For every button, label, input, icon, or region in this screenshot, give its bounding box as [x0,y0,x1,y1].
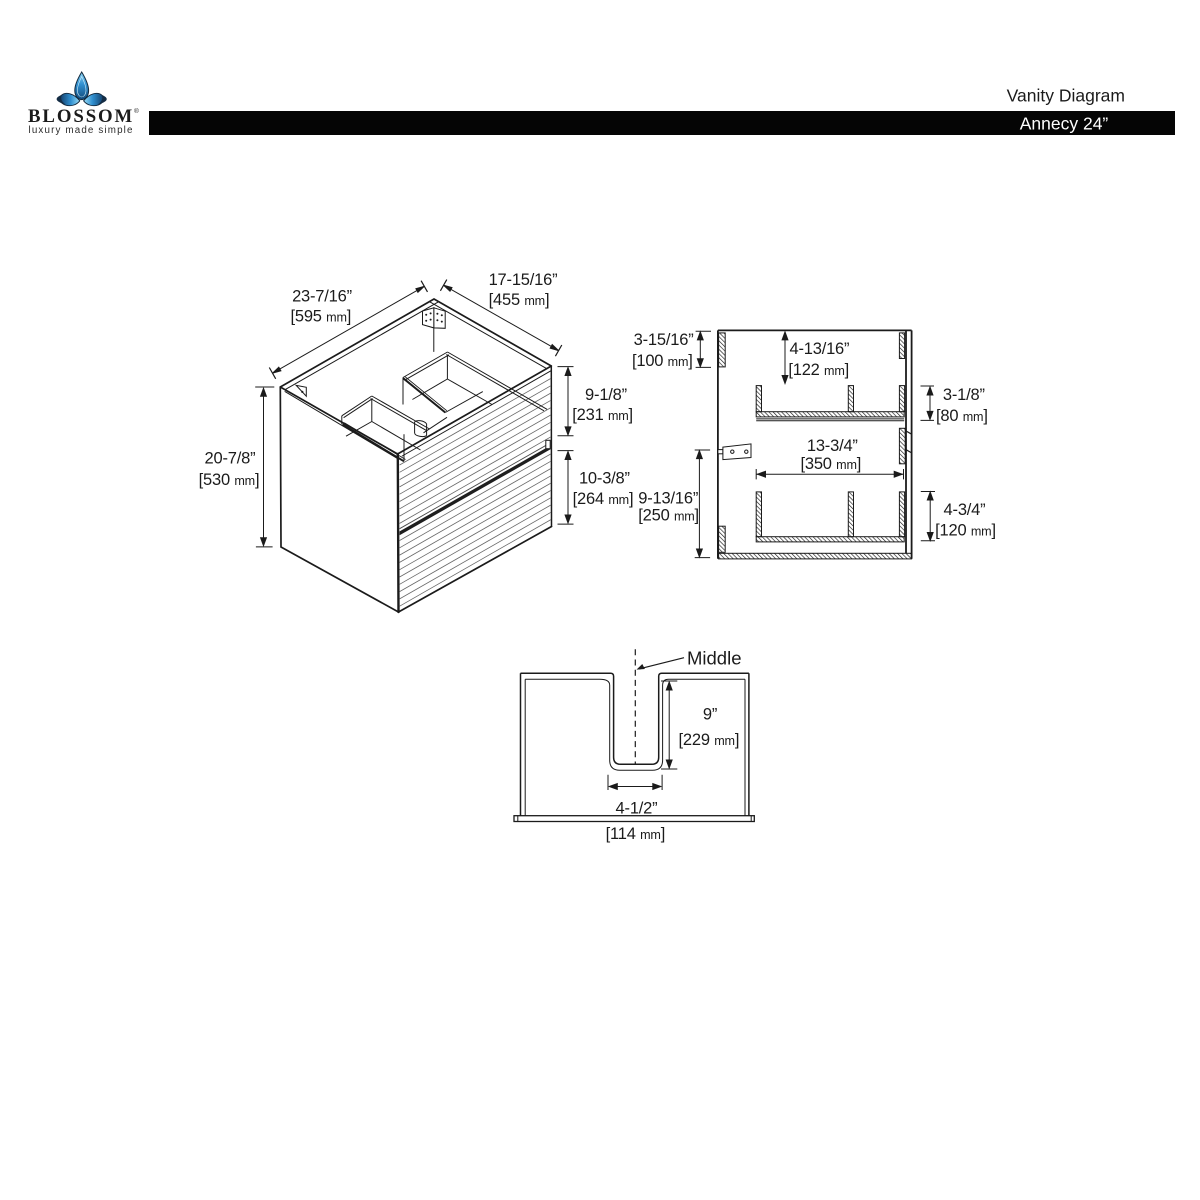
svg-text:[231 mm]: [231 mm] [572,406,633,424]
svg-text:4-3/4”: 4-3/4” [944,501,986,519]
svg-text:9”: 9” [703,706,717,724]
svg-text:[114 mm]: [114 mm] [606,825,665,843]
svg-text:[80 mm]: [80 mm] [936,407,988,425]
svg-text:4-13/16”: 4-13/16” [789,340,849,358]
svg-text:4-1/2”: 4-1/2” [616,799,658,817]
svg-text:[530 mm]: [530 mm] [199,471,260,489]
svg-text:Annecy 24”: Annecy 24” [1020,114,1109,134]
svg-text:[350 mm]: [350 mm] [800,455,861,473]
svg-text:9-13/16”: 9-13/16” [638,489,698,507]
svg-text:®: ® [134,107,139,115]
svg-text:Vanity Diagram: Vanity Diagram [1007,86,1125,106]
svg-text:10-3/8”: 10-3/8” [579,470,630,488]
svg-text:9-1/8”: 9-1/8” [585,386,627,404]
svg-text:[120 mm]: [120 mm] [935,521,996,539]
svg-text:[229 mm]: [229 mm] [679,731,740,749]
svg-text:luxury made simple: luxury made simple [29,125,134,136]
svg-text:13-3/4”: 13-3/4” [807,437,858,455]
svg-text:23-7/16”: 23-7/16” [292,288,352,306]
svg-text:[595 mm]: [595 mm] [290,307,351,325]
svg-text:17-15/16”: 17-15/16” [489,271,558,289]
svg-text:BLOSSOM: BLOSSOM [28,106,134,127]
svg-text:[100 mm]: [100 mm] [632,352,693,370]
svg-text:[264 mm]: [264 mm] [573,490,634,508]
svg-text:[455 mm]: [455 mm] [489,291,550,309]
svg-text:[122 mm]: [122 mm] [788,361,849,379]
svg-text:[250 mm]: [250 mm] [638,506,699,524]
svg-text:20-7/8”: 20-7/8” [205,449,256,467]
svg-text:Middle: Middle [687,647,742,668]
svg-text:3-1/8”: 3-1/8” [943,386,985,404]
svg-text:3-15/16”: 3-15/16” [634,331,694,349]
